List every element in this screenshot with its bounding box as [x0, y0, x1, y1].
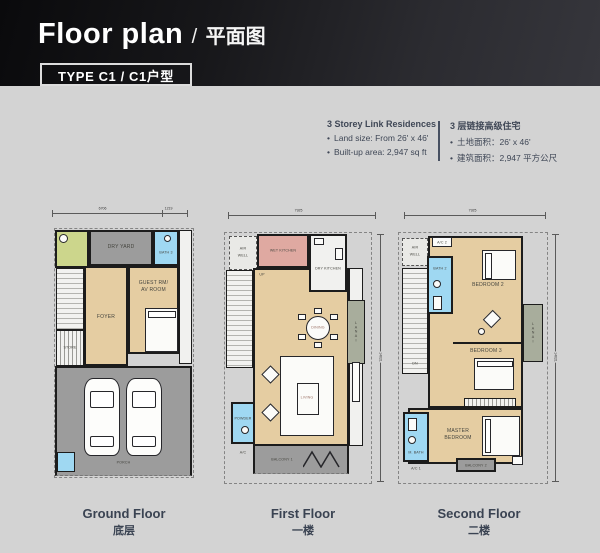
- info-builtup-text-en: Built-up area: 2,947 sq ft: [334, 147, 427, 157]
- store-label: STORE: [59, 346, 81, 350]
- dim-tick: [552, 234, 559, 235]
- bed-pillow: [148, 311, 176, 318]
- stairs-up-label: UP: [256, 273, 268, 277]
- master-bedroom-label-line1: MASTER: [436, 428, 480, 434]
- ground-floor-caption: Ground Floor 底层: [50, 506, 198, 538]
- dimension-line-top: [228, 215, 376, 216]
- title-english: Floor plan: [38, 18, 183, 50]
- dim-tick: [52, 210, 53, 217]
- first-floor-caption: First Floor 一楼: [220, 506, 386, 538]
- dim-tick: [552, 481, 559, 482]
- toilet-icon: [241, 426, 249, 434]
- foyer-label: FOYER: [86, 314, 126, 320]
- water-feature: [57, 452, 75, 472]
- toilet-icon: [408, 436, 416, 444]
- dim-value: 6706: [98, 207, 107, 211]
- louvre-zigzag-icon: [303, 450, 341, 468]
- guest-room-label-line2: AV ROOM: [130, 287, 177, 293]
- info-land-size-text-zh: 土地面积：26' x 46': [457, 137, 531, 147]
- air-well-label-line1: AIR: [234, 247, 253, 251]
- bed-pillow: [477, 361, 513, 367]
- partition-wall: [453, 342, 523, 344]
- info-heading-zh: 3 层链接高级住宅: [450, 119, 557, 132]
- yard-area: [55, 230, 89, 268]
- balcony-2-label: BALCONY 2: [459, 464, 494, 468]
- bath-3-label: BATH 3: [157, 251, 176, 255]
- stove-icon: [335, 248, 343, 260]
- ac-2-label: A/C 2: [433, 241, 452, 245]
- shower-icon: [433, 296, 442, 310]
- bullet-icon: •: [450, 137, 453, 147]
- guest-room: GUEST RM/ AV ROOM: [128, 266, 179, 354]
- bed-pillow: [485, 253, 492, 279]
- bed: [482, 416, 520, 456]
- powder-label: POWDER: [233, 417, 253, 421]
- bullet-icon: •: [327, 147, 330, 157]
- dim-value: 14021: [378, 351, 382, 362]
- sink-icon: [314, 238, 324, 245]
- caption-chinese: 一楼: [220, 522, 386, 538]
- car-rear-window: [132, 436, 155, 447]
- dry-yard-label: DRY YARD: [91, 244, 151, 250]
- info-land-size-zh: •土地面积：26' x 46': [450, 136, 557, 148]
- powder-room: POWDER: [231, 402, 255, 444]
- dining-chair: [330, 334, 338, 340]
- foyer: FOYER: [84, 266, 128, 366]
- car-icon: [126, 378, 162, 456]
- porch-label: PORCH: [76, 461, 172, 465]
- air-well-label-line2: WELL: [234, 254, 253, 258]
- car-windshield: [90, 391, 115, 408]
- dimension-line-top: [404, 215, 546, 216]
- caption-chinese: 二楼: [394, 522, 564, 538]
- utility-strip: [179, 230, 192, 364]
- title-separator: /: [192, 26, 198, 48]
- lanai: LANAI: [523, 304, 543, 362]
- bath-2-label: BATH 2: [429, 267, 451, 271]
- bullet-icon: •: [327, 133, 330, 143]
- toilet-icon: [433, 280, 441, 288]
- dim-tick: [377, 481, 384, 482]
- bed: [474, 358, 514, 390]
- info-builtup-zh: •建筑面积：2,947 平方公尺: [450, 152, 557, 164]
- page-header: Floor plan / 平面图 TYPE C1 / C1户型: [0, 0, 600, 86]
- info-land-size-en: •Land size: From 26' x 46': [327, 133, 436, 143]
- tv-console: [352, 362, 360, 402]
- dining-chair: [314, 342, 322, 348]
- wet-kitchen-label: WET KITCHEN: [263, 249, 303, 253]
- dining-table: DINING: [306, 316, 330, 340]
- dry-yard: DRY YARD: [89, 230, 153, 266]
- dining-label: DINING: [307, 326, 329, 330]
- bath-2: BATH 2: [427, 256, 453, 314]
- master-bath: M. BATH: [403, 412, 429, 462]
- bedroom-2-label: BEDROOM 2: [458, 282, 518, 288]
- stairs-dn-label: DN: [406, 362, 423, 366]
- lanai: LANAI: [347, 300, 365, 364]
- info-builtup-text-zh: 建筑面积：2,947 平方公尺: [457, 153, 557, 163]
- title-chinese: 平面图: [206, 26, 266, 48]
- info-divider: [438, 121, 440, 161]
- info-land-size-text-en: Land size: From 26' x 46': [334, 133, 428, 143]
- lanai-label: LANAI: [531, 322, 535, 344]
- staircase: [56, 268, 84, 330]
- dim-value: 7925: [294, 209, 303, 213]
- car-windshield: [132, 391, 157, 408]
- bench-icon: [512, 456, 523, 465]
- washing-machine-icon: [59, 234, 68, 243]
- ac-unit-2: A/C 2: [432, 237, 452, 247]
- air-well: AIR WELL: [402, 238, 428, 266]
- dim-tick: [545, 212, 546, 219]
- wardrobe: [464, 398, 516, 407]
- bath-3: BATH 3: [153, 230, 179, 266]
- ac-1-label: A/C 1: [407, 467, 424, 471]
- staircase: [226, 270, 253, 368]
- info-builtup-en: •Built-up area: 2,947 sq ft: [327, 147, 436, 157]
- dim-value: 7925: [468, 209, 477, 213]
- caption-english: Second Floor: [394, 506, 564, 521]
- bullet-icon: •: [450, 153, 453, 163]
- dim-value: 14021: [553, 351, 557, 362]
- dining-chair: [330, 314, 338, 320]
- bedroom-3-label: BEDROOM 3: [456, 348, 516, 354]
- bed-pillow: [485, 419, 491, 453]
- dim-tick: [162, 210, 163, 217]
- unit-type-badge: TYPE C1 / C1户型: [40, 63, 192, 86]
- dining-chair: [298, 334, 306, 340]
- info-chinese: 3 层链接高级住宅 •土地面积：26' x 46' •建筑面积：2,947 平方…: [450, 119, 557, 168]
- air-well-label-line1: AIR: [406, 246, 423, 250]
- dry-kitchen: DRY KITCHEN: [309, 234, 347, 292]
- dining-chair: [314, 308, 322, 314]
- porch: PORCH: [55, 366, 192, 476]
- bed: [145, 308, 178, 352]
- stool-icon: [478, 328, 485, 335]
- page-title: Floor plan / 平面图: [38, 18, 266, 51]
- wet-kitchen: WET KITCHEN: [257, 234, 309, 268]
- store-room: STORE: [56, 330, 84, 366]
- dining-chair: [298, 314, 306, 320]
- ac-label: A/C: [236, 451, 250, 455]
- balcony-1-label: BALCONY 1: [264, 458, 300, 462]
- caption-chinese: 底层: [50, 522, 198, 538]
- toilet-icon: [164, 235, 171, 242]
- first-floor-plan: 7925 14021 AIR WELL WET KITCHEN DRY KITC…: [220, 206, 386, 500]
- caption-english: Ground Floor: [50, 506, 198, 521]
- dim-tick: [375, 212, 376, 219]
- air-well-label-line2: WELL: [406, 253, 423, 257]
- caption-english: First Floor: [220, 506, 386, 521]
- dim-tick: [404, 212, 405, 219]
- guest-room-label-line1: GUEST RM/: [130, 280, 177, 286]
- info-heading-en: 3 Storey Link Residences: [327, 119, 436, 129]
- car-rear-window: [90, 436, 113, 447]
- second-floor-caption: Second Floor 二楼: [394, 506, 564, 538]
- dimension-line-top: [52, 213, 188, 214]
- ground-floor-plan: 6706 1219 DRY YARD BATH 3 UP FOYER GUEST…: [50, 206, 198, 500]
- air-well: AIR WELL: [229, 236, 257, 270]
- info-english: 3 Storey Link Residences •Land size: Fro…: [327, 119, 436, 161]
- dim-value: 1219: [164, 207, 173, 211]
- bed: [482, 250, 516, 280]
- lanai-label: LANAI: [354, 321, 358, 343]
- dry-kitchen-label: DRY KITCHEN: [312, 267, 344, 271]
- dim-tick: [377, 234, 384, 235]
- living-sofa-set: LIVING: [280, 356, 334, 436]
- dim-tick: [187, 210, 188, 217]
- balcony-2: BALCONY 2: [456, 458, 496, 472]
- staircase: DN: [402, 268, 428, 374]
- car-icon: [84, 378, 120, 456]
- living-label: LIVING: [288, 396, 325, 400]
- vanity-icon: [408, 418, 417, 431]
- second-floor-plan: 7925 14021 AIR WELL A/C 2 BATH 2 BEDROOM…: [394, 206, 564, 500]
- dim-tick: [228, 212, 229, 219]
- master-bedroom-label-line2: BEDROOM: [436, 435, 480, 441]
- brochure-page: Floor plan / 平面图 TYPE C1 / C1户型 3 Storey…: [0, 0, 600, 553]
- balcony-1: BALCONY 1: [253, 444, 349, 474]
- master-bath-label: M. BATH: [405, 451, 427, 455]
